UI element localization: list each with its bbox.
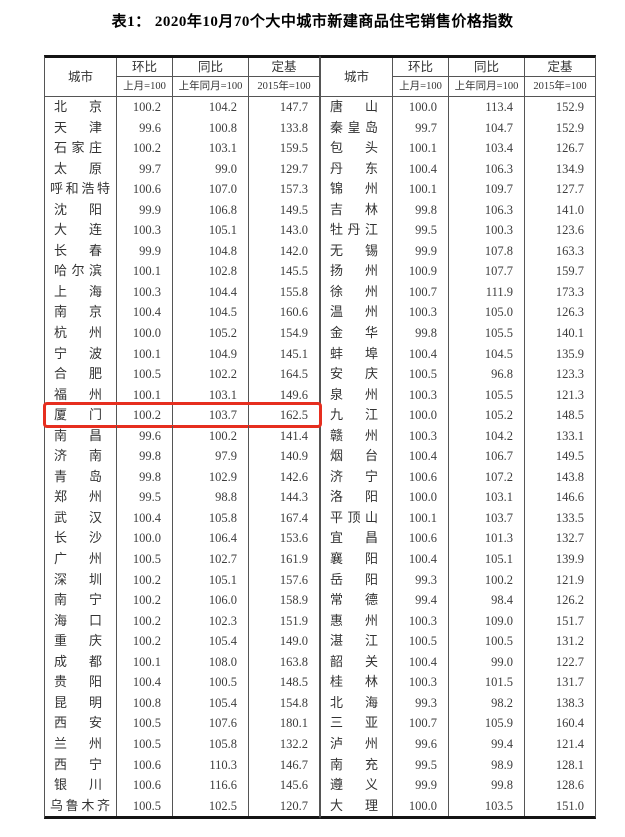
mom-index-value: 100.4 [393,549,449,570]
yoy-index-value: 100.3 [449,220,525,241]
mom-index-value: 100.2 [117,97,173,118]
yoy-index-value: 102.7 [173,549,249,570]
city-name: 昆明 [45,693,117,714]
mom-index-value: 100.8 [117,693,173,714]
fixed-base-index-value: 157.6 [249,570,319,591]
mom-index-value: 99.7 [393,118,449,139]
mom-index-value: 100.4 [393,159,449,180]
yoy-index-value: 104.2 [173,97,249,118]
fixed-base-index-value: 152.9 [525,118,595,139]
city-name: 济南 [45,446,117,467]
fixed-base-index-value: 140.9 [249,446,319,467]
fixed-base-index-value: 163.8 [249,652,319,673]
city-name: 包头 [321,138,393,159]
yoy-index-value: 99.0 [173,159,249,180]
city-name: 无锡 [321,241,393,262]
yoy-index-value: 100.2 [173,426,249,447]
city-name: 沈阳 [45,200,117,221]
yoy-index-value: 106.8 [173,200,249,221]
table-row: 安庆 100.5 96.8 123.3 [321,364,595,385]
mom-index-value: 100.0 [117,528,173,549]
yoy-index-value: 100.2 [449,570,525,591]
fixed-base-index-value: 132.2 [249,734,319,755]
mom-index-value: 100.5 [117,734,173,755]
header-yoy: 同比 [449,58,525,77]
yoy-index-value: 104.5 [173,302,249,323]
header-mom-base: 上月=100 [117,77,173,96]
city-name: 三亚 [321,713,393,734]
header-mom: 环比 [117,58,173,77]
table-left-half: 城市 环比 同比 定基 上月=100 上年同月=100 2015年=100 北京… [44,55,320,819]
fixed-base-index-value: 145.1 [249,344,319,365]
city-name: 贵阳 [45,672,117,693]
table-row: 无锡 99.9 107.8 163.3 [321,241,595,262]
table-row: 徐州 100.7 111.9 173.3 [321,282,595,303]
fixed-base-index-value: 145.5 [249,261,319,282]
table-row: 襄阳 100.4 105.1 139.9 [321,549,595,570]
table-header-left: 城市 环比 同比 定基 上月=100 上年同月=100 2015年=100 [45,58,319,97]
table-row: 泉州 100.3 105.5 121.3 [321,385,595,406]
yoy-index-value: 116.6 [173,775,249,796]
mom-index-value: 100.3 [117,282,173,303]
city-name: 扬州 [321,261,393,282]
yoy-index-value: 110.3 [173,755,249,776]
fixed-base-index-value: 131.7 [525,672,595,693]
mom-index-value: 100.7 [393,282,449,303]
city-name: 合肥 [45,364,117,385]
table-row: 遵义 99.9 99.8 128.6 [321,775,595,796]
header-fixed-base: 2015年=100 [525,77,595,96]
table-row: 韶关 100.4 99.0 122.7 [321,652,595,673]
mom-index-value: 100.7 [393,713,449,734]
yoy-index-value: 109.0 [449,611,525,632]
table-row: 郑州 99.5 98.8 144.3 [45,487,319,508]
mom-index-value: 99.6 [117,426,173,447]
fixed-base-index-value: 141.0 [525,200,595,221]
table-row: 宁波 100.1 104.9 145.1 [45,344,319,365]
fixed-base-index-value: 149.5 [249,200,319,221]
table-row: 牡丹江 99.5 100.3 123.6 [321,220,595,241]
yoy-index-value: 105.9 [449,713,525,734]
yoy-index-value: 104.9 [173,344,249,365]
mom-index-value: 99.6 [117,118,173,139]
header-yoy-base: 上年同月=100 [173,77,249,96]
mom-index-value: 99.5 [117,487,173,508]
city-name: 杭州 [45,323,117,344]
fixed-base-index-value: 167.4 [249,508,319,529]
city-name: 大连 [45,220,117,241]
yoy-index-value: 106.7 [449,446,525,467]
yoy-index-value: 99.0 [449,652,525,673]
header-city: 城市 [45,58,117,96]
fixed-base-index-value: 145.6 [249,775,319,796]
mom-index-value: 100.3 [393,302,449,323]
report-page: 表1： 2020年10月70个大中城市新建商品住宅销售价格指数 城市 环比 同比… [0,0,625,837]
fixed-base-index-value: 144.3 [249,487,319,508]
mom-index-value: 100.1 [117,344,173,365]
mom-index-value: 100.3 [393,426,449,447]
fixed-base-index-value: 151.7 [525,611,595,632]
table-row: 秦皇岛 99.7 104.7 152.9 [321,118,595,139]
fixed-base-index-value: 127.7 [525,179,595,200]
yoy-index-value: 98.4 [449,590,525,611]
fixed-base-index-value: 146.6 [525,487,595,508]
table-row: 丹东 100.4 106.3 134.9 [321,159,595,180]
city-name: 宜昌 [321,528,393,549]
mom-index-value: 100.4 [117,302,173,323]
fixed-base-index-value: 149.5 [525,446,595,467]
table-row: 惠州 100.3 109.0 151.7 [321,611,595,632]
table-row: 深圳 100.2 105.1 157.6 [45,570,319,591]
mom-index-value: 100.5 [117,549,173,570]
city-name: 石家庄 [45,138,117,159]
mom-index-value: 100.6 [117,179,173,200]
table-row: 石家庄 100.2 103.1 159.5 [45,138,319,159]
fixed-base-index-value: 154.9 [249,323,319,344]
yoy-index-value: 105.1 [173,220,249,241]
table-row: 太原 99.7 99.0 129.7 [45,159,319,180]
yoy-index-value: 103.1 [449,487,525,508]
mom-index-value: 100.5 [117,713,173,734]
yoy-index-value: 103.5 [449,796,525,817]
fixed-base-index-value: 133.1 [525,426,595,447]
table-row: 合肥 100.5 102.2 164.5 [45,364,319,385]
mom-index-value: 100.1 [117,652,173,673]
yoy-index-value: 103.7 [449,508,525,529]
yoy-index-value: 105.1 [449,549,525,570]
mom-index-value: 99.7 [117,159,173,180]
mom-index-value: 100.2 [117,138,173,159]
table-row: 兰州 100.5 105.8 132.2 [45,734,319,755]
mom-index-value: 100.1 [393,179,449,200]
table-row: 重庆 100.2 105.4 149.0 [45,631,319,652]
fixed-base-index-value: 138.3 [525,693,595,714]
city-name: 唐山 [321,97,393,118]
yoy-index-value: 102.8 [173,261,249,282]
mom-index-value: 100.0 [393,405,449,426]
table-row: 厦门 100.2 103.7 162.5 [45,405,319,426]
city-name: 南京 [45,302,117,323]
yoy-index-value: 105.2 [173,323,249,344]
city-name: 平顶山 [321,508,393,529]
city-name: 秦皇岛 [321,118,393,139]
mom-index-value: 100.5 [117,364,173,385]
city-name: 天津 [45,118,117,139]
city-name: 南充 [321,755,393,776]
yoy-index-value: 109.7 [449,179,525,200]
city-name: 济宁 [321,467,393,488]
city-name: 福州 [45,385,117,406]
mom-index-value: 100.2 [117,590,173,611]
yoy-index-value: 98.8 [173,487,249,508]
table-row: 北京 100.2 104.2 147.7 [45,97,319,118]
mom-index-value: 99.9 [117,241,173,262]
fixed-base-index-value: 121.4 [525,734,595,755]
city-name: 丹东 [321,159,393,180]
city-name: 遵义 [321,775,393,796]
yoy-index-value: 105.2 [449,405,525,426]
fixed-base-index-value: 148.5 [249,672,319,693]
fixed-base-index-value: 128.6 [525,775,595,796]
city-name: 成都 [45,652,117,673]
mom-index-value: 100.0 [393,796,449,817]
table-row: 北海 99.3 98.2 138.3 [321,693,595,714]
mom-index-value: 99.5 [393,755,449,776]
mom-index-value: 100.1 [393,138,449,159]
yoy-index-value: 98.9 [449,755,525,776]
fixed-base-index-value: 126.2 [525,590,595,611]
city-name: 安庆 [321,364,393,385]
mom-index-value: 100.9 [393,261,449,282]
table-row: 长春 99.9 104.8 142.0 [45,241,319,262]
table-row: 扬州 100.9 107.7 159.7 [321,261,595,282]
yoy-index-value: 107.8 [449,241,525,262]
city-name: 长沙 [45,528,117,549]
yoy-index-value: 106.3 [449,159,525,180]
fixed-base-index-value: 120.7 [249,796,319,817]
table-row: 包头 100.1 103.4 126.7 [321,138,595,159]
fixed-base-index-value: 132.7 [525,528,595,549]
fixed-base-index-value: 161.9 [249,549,319,570]
table-row: 南充 99.5 98.9 128.1 [321,755,595,776]
table-row: 杭州 100.0 105.2 154.9 [45,323,319,344]
yoy-index-value: 104.7 [449,118,525,139]
city-name: 蚌埠 [321,344,393,365]
mom-index-value: 100.2 [117,611,173,632]
fixed-base-index-value: 147.7 [249,97,319,118]
table-row: 青岛 99.8 102.9 142.6 [45,467,319,488]
fixed-base-index-value: 151.0 [525,796,595,817]
yoy-index-value: 104.2 [449,426,525,447]
mom-index-value: 99.8 [117,446,173,467]
yoy-index-value: 104.8 [173,241,249,262]
yoy-index-value: 113.4 [449,97,525,118]
city-name: 徐州 [321,282,393,303]
table-row: 大理 100.0 103.5 151.0 [321,796,595,817]
city-name: 洛阳 [321,487,393,508]
city-name: 乌鲁木齐 [45,796,117,817]
city-name: 南宁 [45,590,117,611]
fixed-base-index-value: 173.3 [525,282,595,303]
city-name: 九江 [321,405,393,426]
city-name: 重庆 [45,631,117,652]
table-row: 沈阳 99.9 106.8 149.5 [45,200,319,221]
mom-index-value: 99.3 [393,693,449,714]
fixed-base-index-value: 164.5 [249,364,319,385]
table-row: 唐山 100.0 113.4 152.9 [321,97,595,118]
table-row: 桂林 100.3 101.5 131.7 [321,672,595,693]
fixed-base-index-value: 148.5 [525,405,595,426]
mom-index-value: 100.3 [393,385,449,406]
city-name: 襄阳 [321,549,393,570]
mom-index-value: 100.3 [117,220,173,241]
table-row: 吉林 99.8 106.3 141.0 [321,200,595,221]
table-row: 金华 99.8 105.5 140.1 [321,323,595,344]
mom-index-value: 100.4 [393,344,449,365]
mom-index-value: 100.1 [393,508,449,529]
city-name: 西宁 [45,755,117,776]
yoy-index-value: 104.4 [173,282,249,303]
fixed-base-index-value: 123.6 [525,220,595,241]
yoy-index-value: 98.2 [449,693,525,714]
city-name: 兰州 [45,734,117,755]
header-mom: 环比 [393,58,449,77]
table-row: 宜昌 100.6 101.3 132.7 [321,528,595,549]
fixed-base-index-value: 158.9 [249,590,319,611]
table-row: 济宁 100.6 107.2 143.8 [321,467,595,488]
table-row: 海口 100.2 102.3 151.9 [45,611,319,632]
fixed-base-index-value: 153.6 [249,528,319,549]
table-row: 西宁 100.6 110.3 146.7 [45,755,319,776]
price-index-table: 城市 环比 同比 定基 上月=100 上年同月=100 2015年=100 北京… [44,55,596,819]
mom-index-value: 100.3 [393,672,449,693]
city-name: 太原 [45,159,117,180]
header-yoy-base: 上年同月=100 [449,77,525,96]
yoy-index-value: 100.5 [173,672,249,693]
mom-index-value: 99.8 [117,467,173,488]
yoy-index-value: 97.9 [173,446,249,467]
header-city: 城市 [321,58,393,96]
yoy-index-value: 105.8 [173,734,249,755]
table-row: 武汉 100.4 105.8 167.4 [45,508,319,529]
city-name: 惠州 [321,611,393,632]
yoy-index-value: 99.4 [449,734,525,755]
fixed-base-index-value: 155.8 [249,282,319,303]
mom-index-value: 99.9 [393,775,449,796]
table-row: 大连 100.3 105.1 143.0 [45,220,319,241]
yoy-index-value: 104.5 [449,344,525,365]
table-right-half: 城市 环比 同比 定基 上月=100 上年同月=100 2015年=100 唐山… [320,55,596,819]
mom-index-value: 100.4 [117,508,173,529]
fixed-base-index-value: 139.9 [525,549,595,570]
yoy-index-value: 107.2 [449,467,525,488]
city-name: 深圳 [45,570,117,591]
city-name: 温州 [321,302,393,323]
mom-index-value: 100.6 [393,467,449,488]
city-name: 广州 [45,549,117,570]
yoy-index-value: 105.4 [173,693,249,714]
mom-index-value: 100.2 [117,631,173,652]
table-body-right: 唐山 100.0 113.4 152.9 秦皇岛 99.7 104.7 152.… [321,97,595,816]
city-name: 岳阳 [321,570,393,591]
table-row: 三亚 100.7 105.9 160.4 [321,713,595,734]
fixed-base-index-value: 159.7 [525,261,595,282]
mom-index-value: 100.0 [117,323,173,344]
header-fixed-base: 2015年=100 [249,77,319,96]
city-name: 牡丹江 [321,220,393,241]
table-row: 泸州 99.6 99.4 121.4 [321,734,595,755]
yoy-index-value: 102.5 [173,796,249,817]
fixed-base-index-value: 157.3 [249,179,319,200]
fixed-base-index-value: 131.2 [525,631,595,652]
yoy-index-value: 101.3 [449,528,525,549]
header-mom-base: 上月=100 [393,77,449,96]
city-name: 宁波 [45,344,117,365]
yoy-index-value: 100.8 [173,118,249,139]
mom-index-value: 100.6 [117,755,173,776]
fixed-base-index-value: 154.8 [249,693,319,714]
city-name: 北京 [45,97,117,118]
table-row: 昆明 100.8 105.4 154.8 [45,693,319,714]
city-name: 郑州 [45,487,117,508]
city-name: 长春 [45,241,117,262]
city-name: 北海 [321,693,393,714]
city-name: 烟台 [321,446,393,467]
table-row: 银川 100.6 116.6 145.6 [45,775,319,796]
fixed-base-index-value: 133.5 [525,508,595,529]
mom-index-value: 100.5 [117,796,173,817]
fixed-base-index-value: 143.0 [249,220,319,241]
mom-index-value: 100.1 [117,385,173,406]
yoy-index-value: 103.1 [173,138,249,159]
mom-index-value: 99.8 [393,323,449,344]
fixed-base-index-value: 133.8 [249,118,319,139]
table-row: 湛江 100.5 100.5 131.2 [321,631,595,652]
mom-index-value: 99.5 [393,220,449,241]
table-row: 九江 100.0 105.2 148.5 [321,405,595,426]
fixed-base-index-value: 135.9 [525,344,595,365]
fixed-base-index-value: 149.0 [249,631,319,652]
city-name: 湛江 [321,631,393,652]
mom-index-value: 100.4 [393,652,449,673]
city-name: 哈尔滨 [45,261,117,282]
fixed-base-index-value: 123.3 [525,364,595,385]
yoy-index-value: 106.3 [449,200,525,221]
mom-index-value: 100.6 [117,775,173,796]
table-row: 哈尔滨 100.1 102.8 145.5 [45,261,319,282]
city-name: 青岛 [45,467,117,488]
fixed-base-index-value: 152.9 [525,97,595,118]
fixed-base-index-value: 159.5 [249,138,319,159]
mom-index-value: 99.8 [393,200,449,221]
yoy-index-value: 105.5 [449,385,525,406]
table-row: 乌鲁木齐 100.5 102.5 120.7 [45,796,319,817]
fixed-base-index-value: 151.9 [249,611,319,632]
fixed-base-index-value: 180.1 [249,713,319,734]
fixed-base-index-value: 142.0 [249,241,319,262]
yoy-index-value: 103.4 [449,138,525,159]
city-name: 吉林 [321,200,393,221]
fixed-base-index-value: 126.7 [525,138,595,159]
yoy-index-value: 107.0 [173,179,249,200]
table-row: 济南 99.8 97.9 140.9 [45,446,319,467]
table-row: 呼和浩特 100.6 107.0 157.3 [45,179,319,200]
fixed-base-index-value: 129.7 [249,159,319,180]
yoy-index-value: 106.0 [173,590,249,611]
city-name: 韶关 [321,652,393,673]
mom-index-value: 100.2 [117,570,173,591]
table-row: 南昌 99.6 100.2 141.4 [45,426,319,447]
yoy-index-value: 107.7 [449,261,525,282]
mom-index-value: 100.3 [393,611,449,632]
yoy-index-value: 102.2 [173,364,249,385]
yoy-index-value: 105.5 [449,323,525,344]
city-name: 上海 [45,282,117,303]
mom-index-value: 99.9 [393,241,449,262]
fixed-base-index-value: 143.8 [525,467,595,488]
yoy-index-value: 107.6 [173,713,249,734]
fixed-base-index-value: 163.3 [525,241,595,262]
table-row: 福州 100.1 103.1 149.6 [45,385,319,406]
city-name: 海口 [45,611,117,632]
fixed-base-index-value: 149.6 [249,385,319,406]
table-row: 上海 100.3 104.4 155.8 [45,282,319,303]
fixed-base-index-value: 121.3 [525,385,595,406]
city-name: 常德 [321,590,393,611]
city-name: 南昌 [45,426,117,447]
header-yoy: 同比 [173,58,249,77]
fixed-base-index-value: 140.1 [525,323,595,344]
